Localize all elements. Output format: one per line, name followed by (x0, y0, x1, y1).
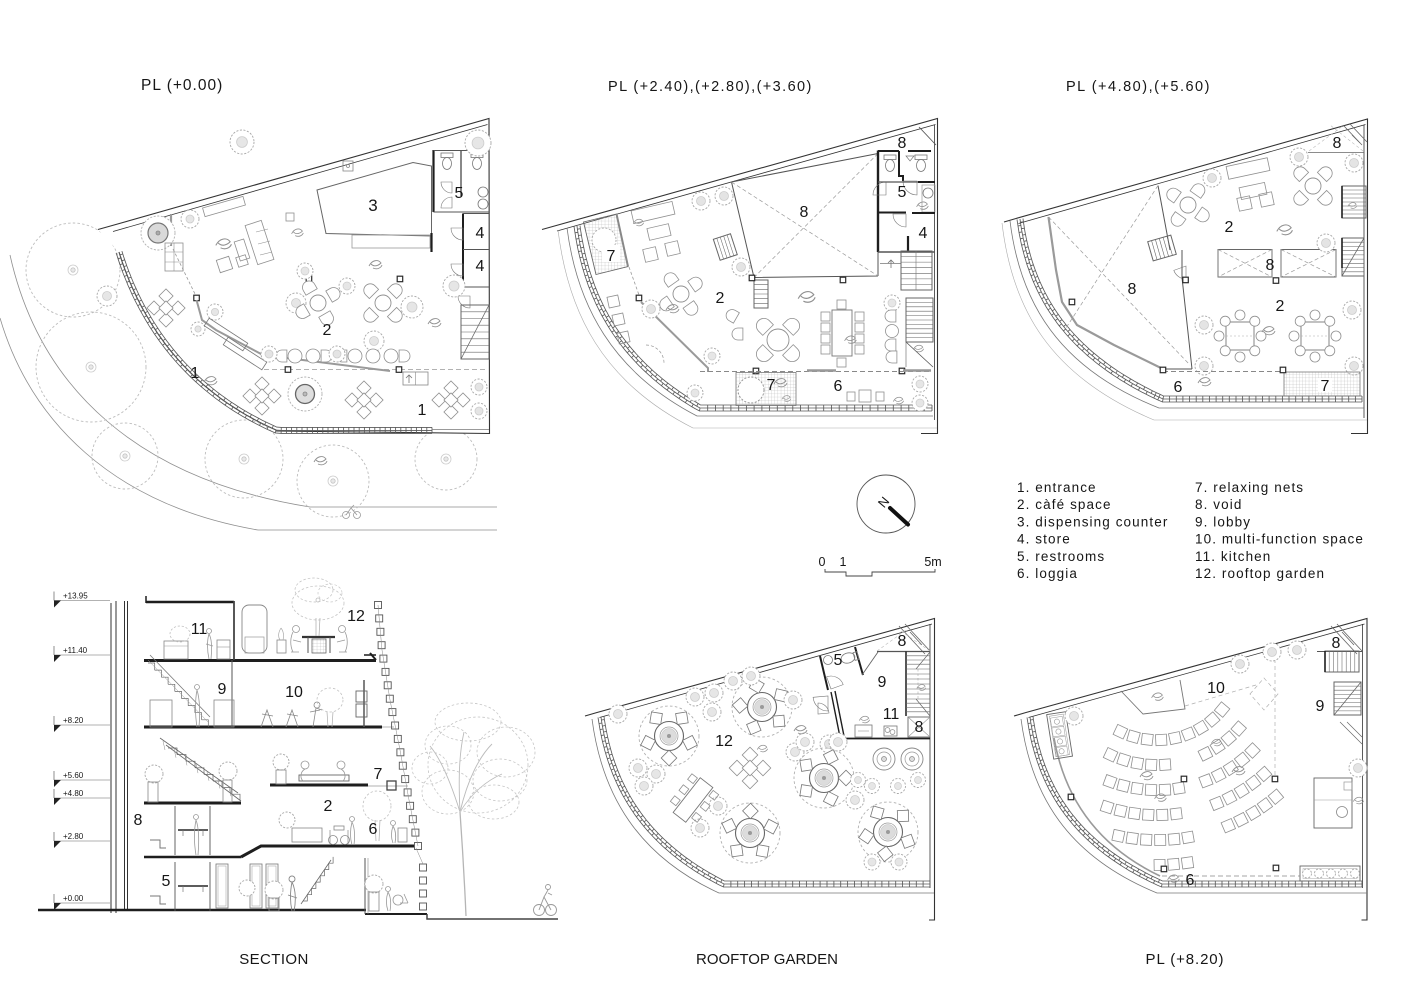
svg-text:12: 12 (715, 733, 733, 750)
svg-text:5m: 5m (924, 555, 941, 569)
svg-text:5: 5 (834, 652, 843, 669)
svg-text:1: 1 (840, 555, 847, 569)
svg-text:6. loggia: 6. loggia (1017, 566, 1078, 581)
svg-text:12. rooftop garden: 12. rooftop garden (1195, 566, 1325, 581)
svg-text:5: 5 (162, 873, 171, 890)
svg-text:8: 8 (134, 812, 143, 829)
svg-text:4: 4 (476, 225, 485, 242)
svg-text:7: 7 (607, 248, 616, 265)
svg-text:7: 7 (374, 766, 383, 783)
svg-text:4. store: 4. store (1017, 532, 1071, 547)
svg-text:2: 2 (324, 798, 333, 815)
svg-text:7: 7 (767, 377, 776, 394)
svg-text:8: 8 (1333, 135, 1342, 152)
svg-text:8: 8 (1128, 281, 1137, 298)
svg-text:SECTION: SECTION (239, 951, 308, 968)
svg-text:5. restrooms: 5. restrooms (1017, 549, 1105, 564)
svg-text:1: 1 (191, 365, 200, 382)
svg-text:2. càfé space: 2. càfé space (1017, 497, 1112, 512)
svg-text:+0.00: +0.00 (63, 894, 84, 903)
svg-text:5: 5 (455, 185, 464, 202)
svg-text:ROOFTOP GARDEN: ROOFTOP GARDEN (696, 951, 838, 968)
svg-text:9: 9 (878, 674, 887, 691)
svg-text:8: 8 (1266, 257, 1275, 274)
svg-text:2: 2 (323, 322, 332, 339)
svg-text:4: 4 (476, 258, 485, 275)
svg-text:9: 9 (218, 681, 227, 698)
svg-text:11: 11 (883, 706, 900, 723)
svg-text:+2.80: +2.80 (63, 832, 84, 841)
svg-text:11. kitchen: 11. kitchen (1195, 549, 1271, 564)
svg-text:2: 2 (1276, 298, 1285, 315)
svg-text:8: 8 (898, 135, 907, 152)
svg-text:7. relaxing nets: 7. relaxing nets (1195, 480, 1304, 495)
svg-text:10: 10 (1207, 680, 1225, 697)
svg-text:6: 6 (1186, 872, 1195, 889)
svg-text:6: 6 (369, 821, 378, 838)
svg-text:9. lobby: 9. lobby (1195, 514, 1251, 529)
svg-text:6: 6 (834, 378, 843, 395)
svg-text:+11.40: +11.40 (63, 646, 88, 655)
svg-text:2: 2 (1225, 219, 1234, 236)
svg-text:PL (+0.00): PL (+0.00) (141, 77, 223, 94)
svg-text:8: 8 (915, 719, 924, 736)
svg-text:PL (+2.40),(+2.80),(+3.60): PL (+2.40),(+2.80),(+3.60) (608, 79, 813, 95)
svg-text:11: 11 (191, 621, 208, 638)
svg-text:1: 1 (418, 402, 427, 419)
svg-text:+4.80: +4.80 (63, 789, 84, 798)
svg-text:+13.95: +13.95 (63, 592, 88, 601)
svg-text:6: 6 (1174, 379, 1183, 396)
svg-text:3. dispensing counter: 3. dispensing counter (1017, 514, 1168, 529)
svg-text:3: 3 (368, 196, 377, 215)
svg-text:1. entrance: 1. entrance (1017, 480, 1097, 495)
svg-text:8: 8 (1332, 635, 1341, 652)
svg-text:8. void: 8. void (1195, 497, 1242, 512)
svg-text:PL (+8.20): PL (+8.20) (1146, 951, 1225, 968)
svg-text:10: 10 (285, 684, 303, 701)
svg-text:10. multi-function space: 10. multi-function space (1195, 532, 1364, 547)
svg-text:4: 4 (919, 225, 928, 242)
svg-text:PL (+4.80),(+5.60): PL (+4.80),(+5.60) (1066, 79, 1211, 95)
svg-text:2: 2 (716, 290, 725, 307)
svg-text:0: 0 (819, 555, 826, 569)
svg-text:8: 8 (898, 633, 907, 650)
svg-text:+8.20: +8.20 (63, 716, 84, 725)
svg-text:+5.60: +5.60 (63, 771, 84, 780)
svg-text:12: 12 (347, 608, 365, 625)
svg-text:8: 8 (800, 204, 809, 221)
svg-text:7: 7 (1321, 378, 1330, 395)
svg-text:9: 9 (1316, 698, 1325, 715)
svg-text:5: 5 (898, 184, 907, 201)
